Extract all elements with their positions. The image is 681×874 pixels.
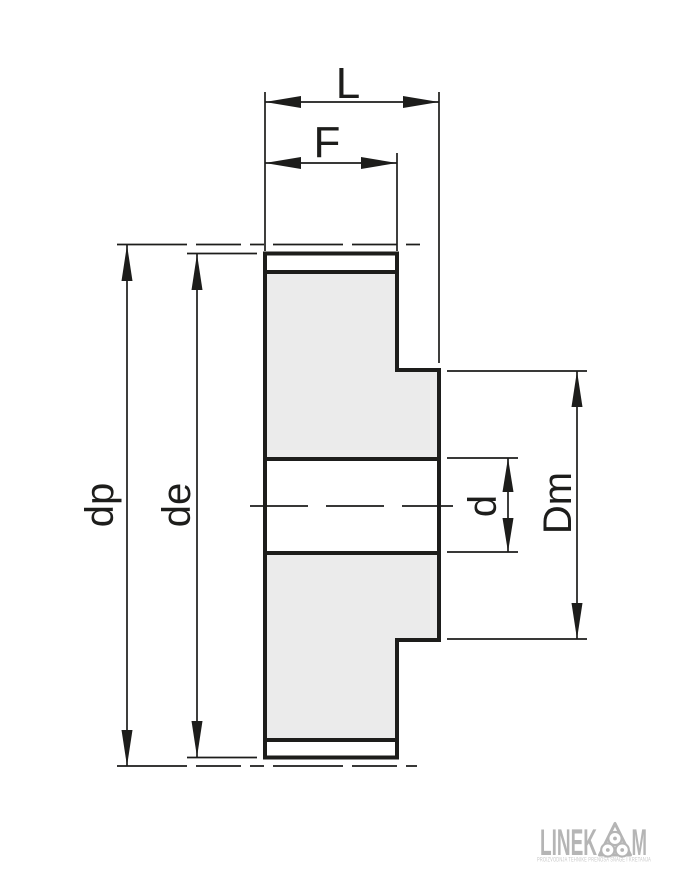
F-label: F — [314, 118, 341, 167]
Dm-label: Dm — [536, 472, 580, 534]
dp-arrow-bottom — [122, 730, 133, 766]
pulley-section-fill-lower — [265, 553, 439, 740]
d-arrow-top — [503, 458, 514, 492]
pulley-section-fill-upper — [265, 272, 439, 459]
Dm-arrow-top — [572, 371, 583, 407]
dimension-de: de — [155, 254, 257, 758]
technical-drawing: L F dp de d — [0, 0, 681, 874]
dimension-F: F — [265, 118, 397, 251]
dp-label: dp — [78, 483, 122, 528]
de-arrow-top — [192, 254, 203, 290]
linekom-logo: LINEK M PROIZVODNJA TEHNIKE PRENOSA SNAG… — [537, 822, 651, 864]
d-label: d — [461, 495, 505, 517]
L-arrow-left — [265, 96, 301, 108]
L-arrow-right — [403, 96, 439, 108]
F-arrow-left — [265, 157, 301, 169]
F-arrow-right — [361, 157, 397, 169]
pulley-body — [250, 254, 453, 758]
pulley-dot-top — [613, 837, 617, 841]
logo-tagline: PROIZVODNJA TEHNIKE PRENOSA SNAGE I KRET… — [537, 857, 651, 864]
d-arrow-bottom — [503, 518, 514, 552]
pulley-dot-left — [606, 848, 610, 852]
de-arrow-bottom — [192, 721, 203, 757]
de-label: de — [155, 483, 199, 528]
dp-arrow-top — [122, 245, 133, 281]
pulley-dot-right — [620, 848, 624, 852]
three-pulley-belt-icon — [600, 824, 631, 857]
L-label: L — [336, 59, 360, 108]
dimension-d: d — [447, 458, 518, 552]
Dm-arrow-bottom — [572, 603, 583, 639]
drawing-page: L F dp de d — [0, 0, 681, 874]
